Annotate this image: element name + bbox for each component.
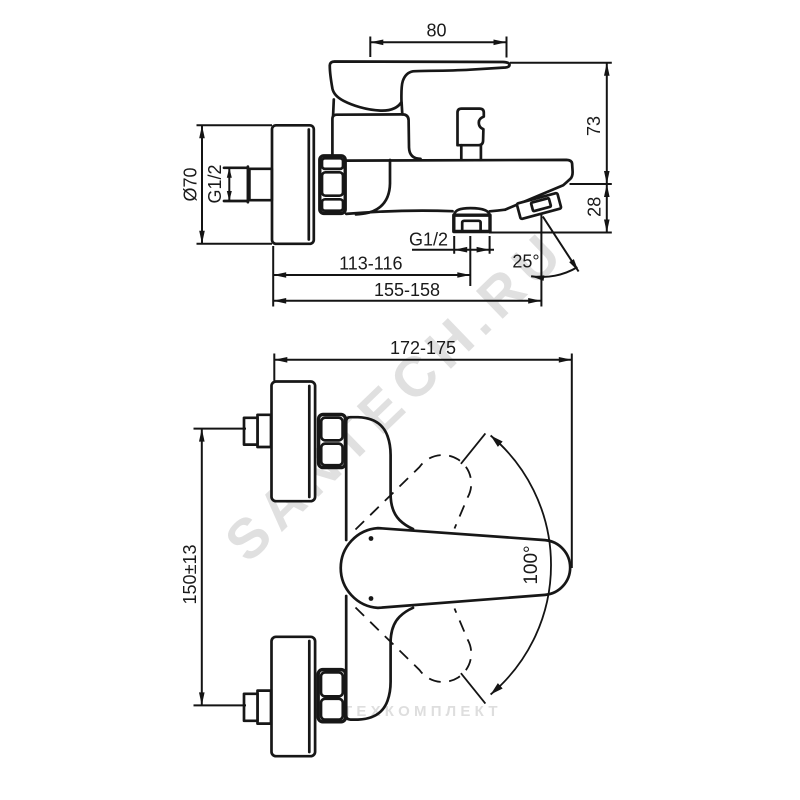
svg-text:172-175: 172-175 (390, 338, 456, 358)
svg-text:73: 73 (584, 116, 604, 136)
svg-text:113-116: 113-116 (339, 253, 402, 273)
svg-text:25°: 25° (512, 252, 539, 272)
svg-text:G1/2: G1/2 (205, 164, 225, 203)
svg-text:100°: 100° (521, 545, 542, 584)
svg-text:150±13: 150±13 (180, 545, 200, 605)
svg-text:28: 28 (584, 197, 604, 217)
svg-text:Ø70: Ø70 (181, 167, 201, 201)
svg-text:155-158: 155-158 (374, 280, 440, 300)
svg-text:80: 80 (426, 20, 446, 40)
svg-text:G1/2: G1/2 (409, 229, 448, 249)
